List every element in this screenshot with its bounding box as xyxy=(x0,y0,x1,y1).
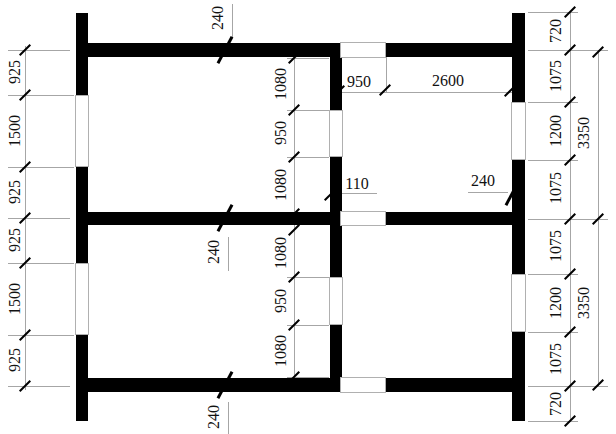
left-ext-line xyxy=(8,95,74,96)
dim-label: 1075 xyxy=(548,60,564,92)
thickness-ext-line xyxy=(228,402,229,434)
dim-label: 1075 xyxy=(548,343,564,375)
dim-label: 1200 xyxy=(548,115,564,147)
middle-wall xyxy=(88,212,512,225)
right-wall xyxy=(512,13,525,421)
dim-label: 950 xyxy=(273,121,289,145)
dim-label: 1080 xyxy=(273,335,289,367)
bottom-wall xyxy=(88,378,512,392)
wall-thickness-dim-line xyxy=(468,192,508,193)
left-wall-window-bottom xyxy=(75,263,89,335)
dim-label: 1080 xyxy=(273,169,289,201)
dim-label: 240 xyxy=(210,6,226,30)
dim-label: 1075 xyxy=(548,230,564,262)
left-ext-line xyxy=(8,386,70,387)
dim-label: 925 xyxy=(7,228,23,252)
center-wall-window-bottom xyxy=(329,277,343,325)
right-wall-window-top xyxy=(511,102,526,160)
left-wall xyxy=(76,13,88,421)
left-ext-line xyxy=(8,263,74,264)
dim-label: 1075 xyxy=(548,172,564,204)
left-ext-line xyxy=(8,50,70,51)
dim-label: 1200 xyxy=(548,287,564,319)
dim-label: 240 xyxy=(471,173,495,189)
left-ext-line xyxy=(8,167,74,168)
dim-label: 1500 xyxy=(7,115,23,147)
left-ext-line xyxy=(8,335,74,336)
dim-label: 720 xyxy=(548,392,564,416)
floor-plan-drawing: 925 1500 925 925 1500 925 720 1075 1200 … xyxy=(0,0,616,434)
dim-label: 110 xyxy=(345,176,368,192)
bottom-wall-opening xyxy=(340,377,386,393)
dim-label: 720 xyxy=(548,19,564,43)
dim-label: 950 xyxy=(347,74,371,90)
dim-label: 925 xyxy=(7,180,23,204)
dim-label: 925 xyxy=(7,348,23,372)
top-wall xyxy=(88,43,512,57)
middle-wall-opening xyxy=(340,211,386,226)
left-ext-line xyxy=(8,218,70,219)
dim-total-label: 3350 xyxy=(576,117,592,149)
thickness-ext-line xyxy=(232,4,233,38)
dim-label: 240 xyxy=(206,405,222,429)
dim-label: 1080 xyxy=(273,237,289,269)
offset-dim-line xyxy=(336,193,377,194)
top-wall-opening xyxy=(340,42,386,58)
center-wall-window-top xyxy=(329,110,343,157)
dim-label: 1500 xyxy=(7,283,23,315)
dim-label: 2600 xyxy=(432,73,464,89)
dim-total-label: 3350 xyxy=(576,287,592,319)
dim-label: 925 xyxy=(7,60,23,84)
dim-tick xyxy=(379,84,391,96)
dim-label: 1080 xyxy=(273,68,289,100)
left-wall-window-top xyxy=(75,95,89,167)
room-dim-line xyxy=(330,92,512,93)
dim-label: 950 xyxy=(273,289,289,313)
thickness-ext-line xyxy=(228,237,229,271)
right-wall-window-bottom xyxy=(511,274,526,332)
dim-label: 240 xyxy=(206,240,222,264)
